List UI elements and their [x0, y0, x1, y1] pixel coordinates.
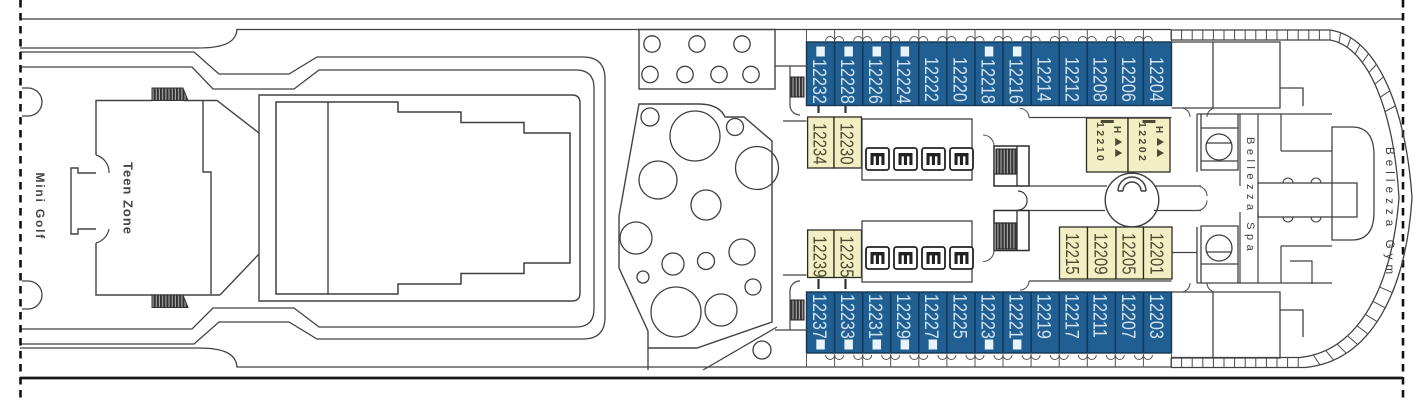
svg-text:12229: 12229	[893, 294, 915, 339]
svg-text:12231: 12231	[865, 294, 887, 339]
svg-text:H: H	[1153, 126, 1164, 133]
svg-text:12207: 12207	[1117, 294, 1139, 339]
svg-text:12223: 12223	[977, 294, 999, 339]
svg-text:12226: 12226	[865, 59, 887, 104]
svg-text:12219: 12219	[1033, 294, 1055, 339]
svg-text:12208: 12208	[1089, 57, 1111, 102]
svg-text:12222: 12222	[921, 57, 943, 102]
svg-text:12210: 12210	[1094, 122, 1106, 163]
svg-text:12203: 12203	[1146, 294, 1168, 339]
svg-text:12218: 12218	[977, 59, 999, 104]
svg-text:12220: 12220	[949, 57, 971, 102]
svg-text:12224: 12224	[893, 59, 915, 104]
svg-text:12206: 12206	[1117, 57, 1139, 102]
svg-text:12201: 12201	[1146, 233, 1167, 275]
svg-text:Mini Golf: Mini Golf	[33, 173, 47, 241]
svg-text:12235: 12235	[836, 236, 857, 278]
svg-text:H: H	[1111, 126, 1122, 133]
svg-text:12209: 12209	[1090, 233, 1111, 275]
svg-text:12204: 12204	[1146, 57, 1168, 102]
svg-text:Teen Zone: Teen Zone	[121, 162, 136, 235]
svg-text:12212: 12212	[1061, 57, 1083, 102]
svg-text:12202: 12202	[1136, 122, 1148, 163]
svg-text:12234: 12234	[809, 123, 830, 165]
svg-text:12237: 12237	[809, 294, 831, 339]
svg-text:12221: 12221	[1005, 294, 1027, 339]
svg-text:12217: 12217	[1061, 294, 1083, 339]
svg-text:12228: 12228	[837, 59, 859, 104]
svg-text:12232: 12232	[809, 59, 831, 104]
svg-text:Bellezza Spa: Bellezza Spa	[1244, 137, 1256, 255]
svg-text:12227: 12227	[921, 294, 943, 339]
svg-text:12230: 12230	[836, 123, 857, 165]
svg-text:12233: 12233	[837, 294, 859, 339]
svg-text:12211: 12211	[1089, 294, 1111, 338]
svg-text:12216: 12216	[1005, 59, 1027, 104]
svg-text:12225: 12225	[949, 294, 971, 339]
svg-text:12239: 12239	[809, 236, 830, 278]
svg-text:12205: 12205	[1118, 233, 1139, 275]
svg-text:12215: 12215	[1062, 233, 1083, 275]
svg-text:12214: 12214	[1033, 57, 1055, 102]
